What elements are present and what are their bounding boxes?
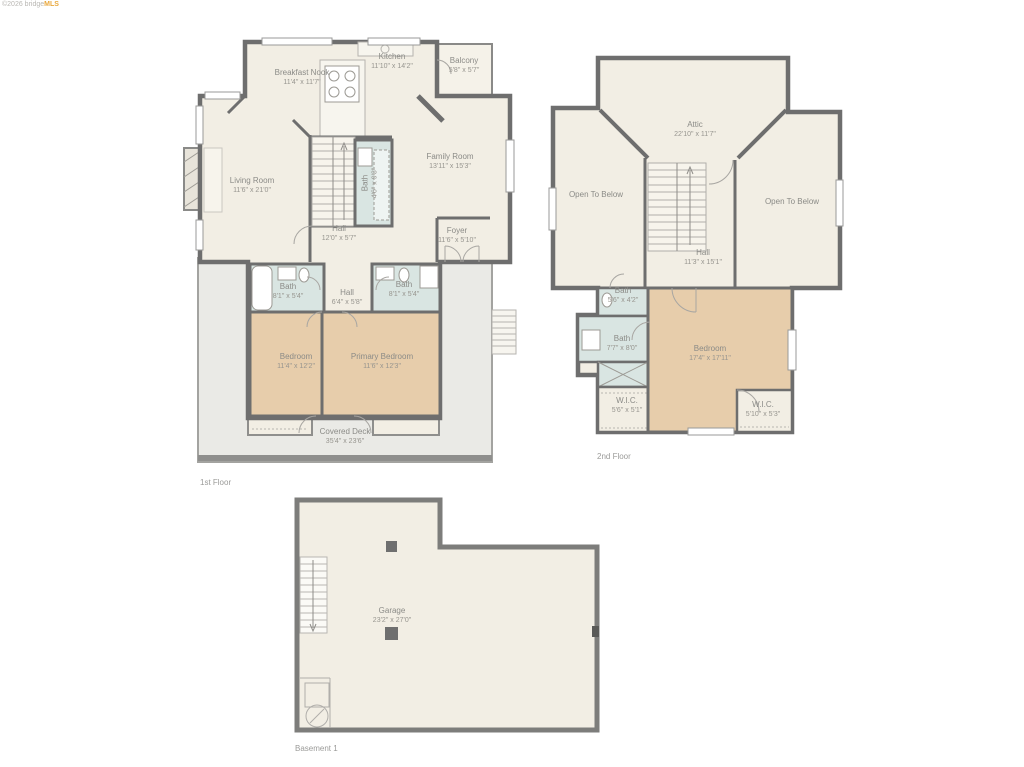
floorplan-page: ©2026 bridgeMLS <box>0 0 1024 767</box>
bathtub-icon <box>252 266 272 310</box>
wic-right-room <box>737 390 792 432</box>
basement-plan <box>297 500 599 730</box>
toilet-icon <box>399 268 409 282</box>
shower-stall <box>598 362 648 387</box>
toilet-icon <box>299 268 309 282</box>
balcony-room <box>437 44 492 96</box>
sink-icon <box>358 148 372 166</box>
sink-icon <box>278 267 296 280</box>
staircase-first-floor <box>312 137 355 226</box>
support-post <box>386 541 397 552</box>
primary-bedroom-room <box>322 312 440 416</box>
bath-mid-room <box>578 316 650 362</box>
bath-right-room <box>372 264 440 312</box>
floorplan-drawing <box>0 0 1024 767</box>
hearth <box>204 148 222 212</box>
staircase-basement <box>300 557 327 633</box>
wic-left-room <box>598 387 650 432</box>
first-floor-title: 1st Floor <box>200 478 231 487</box>
staircase-second-floor <box>648 163 706 251</box>
second-floor-title: 2nd Floor <box>597 452 631 461</box>
tub-icon <box>374 150 389 220</box>
stove-icon <box>325 66 359 102</box>
basement-exterior-walls <box>297 500 597 730</box>
basement-title: Basement 1 <box>295 744 338 753</box>
bath-left-room <box>250 264 324 312</box>
shower-icon <box>420 266 438 288</box>
sink-icon <box>582 330 600 350</box>
deck-stairs <box>492 310 516 354</box>
support-post <box>385 627 398 640</box>
first-floor-plan <box>184 38 516 462</box>
bath-center-room <box>355 140 392 226</box>
garage-door-mark <box>592 626 599 637</box>
toilet-icon <box>602 293 612 307</box>
bath-small-room <box>598 288 648 316</box>
bedroom-room <box>250 312 322 416</box>
second-floor-plan <box>549 58 843 435</box>
